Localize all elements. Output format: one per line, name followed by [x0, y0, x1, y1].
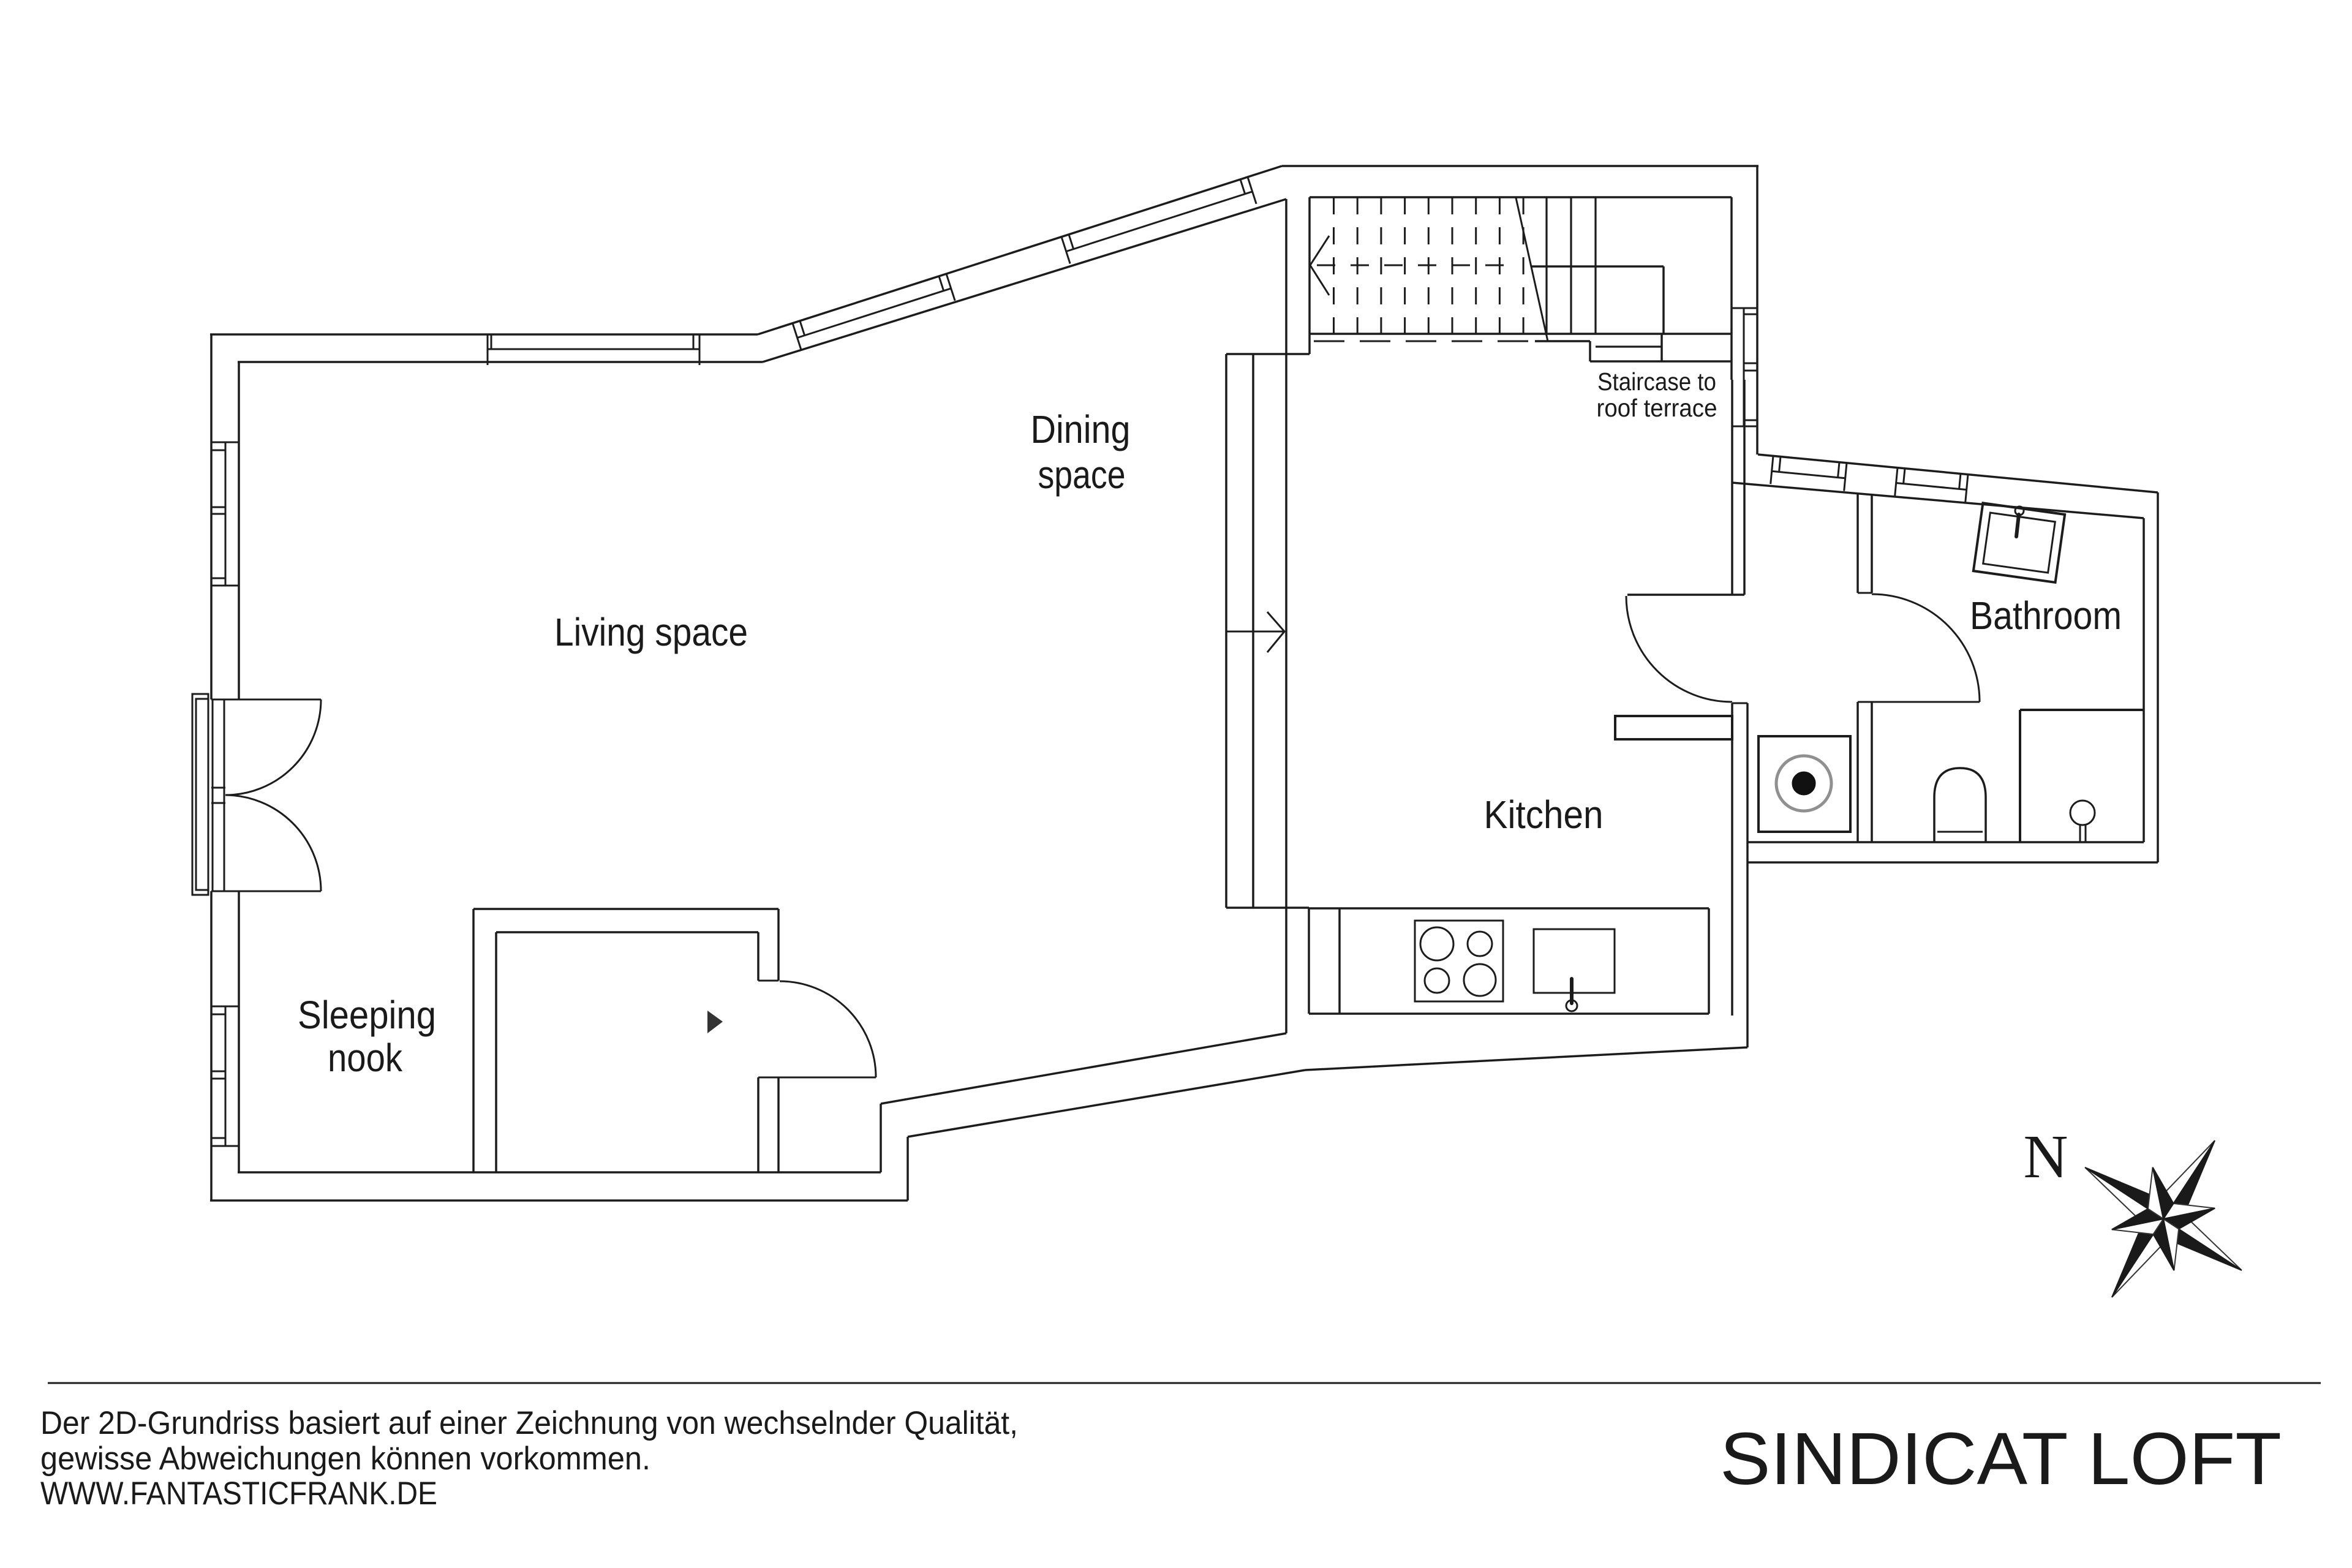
svg-text:Staircase to: Staircase to [1597, 367, 1716, 396]
svg-text:gewisse Abweichungen können vo: gewisse Abweichungen können vorkommen. [40, 1441, 650, 1477]
svg-text:Dining: Dining [1031, 407, 1131, 451]
svg-text:Sleeping: Sleeping [298, 993, 436, 1037]
svg-text:WWW.FANTASTICFRANK.DE: WWW.FANTASTICFRANK.DE [40, 1476, 437, 1512]
svg-text:space: space [1038, 453, 1126, 497]
svg-text:N: N [2024, 1122, 2068, 1191]
svg-text:roof terrace: roof terrace [1597, 394, 1717, 422]
svg-text:Der 2D-Grundriss basiert auf e: Der 2D-Grundriss basiert auf einer Zeich… [40, 1405, 1018, 1441]
svg-text:nook: nook [328, 1036, 403, 1080]
svg-text:Kitchen: Kitchen [1484, 793, 1604, 837]
svg-text:Bathroom: Bathroom [1970, 594, 2122, 638]
svg-text:SINDICAT LOFT: SINDICAT LOFT [1720, 1417, 2282, 1500]
svg-text:Living space: Living space [554, 610, 748, 654]
